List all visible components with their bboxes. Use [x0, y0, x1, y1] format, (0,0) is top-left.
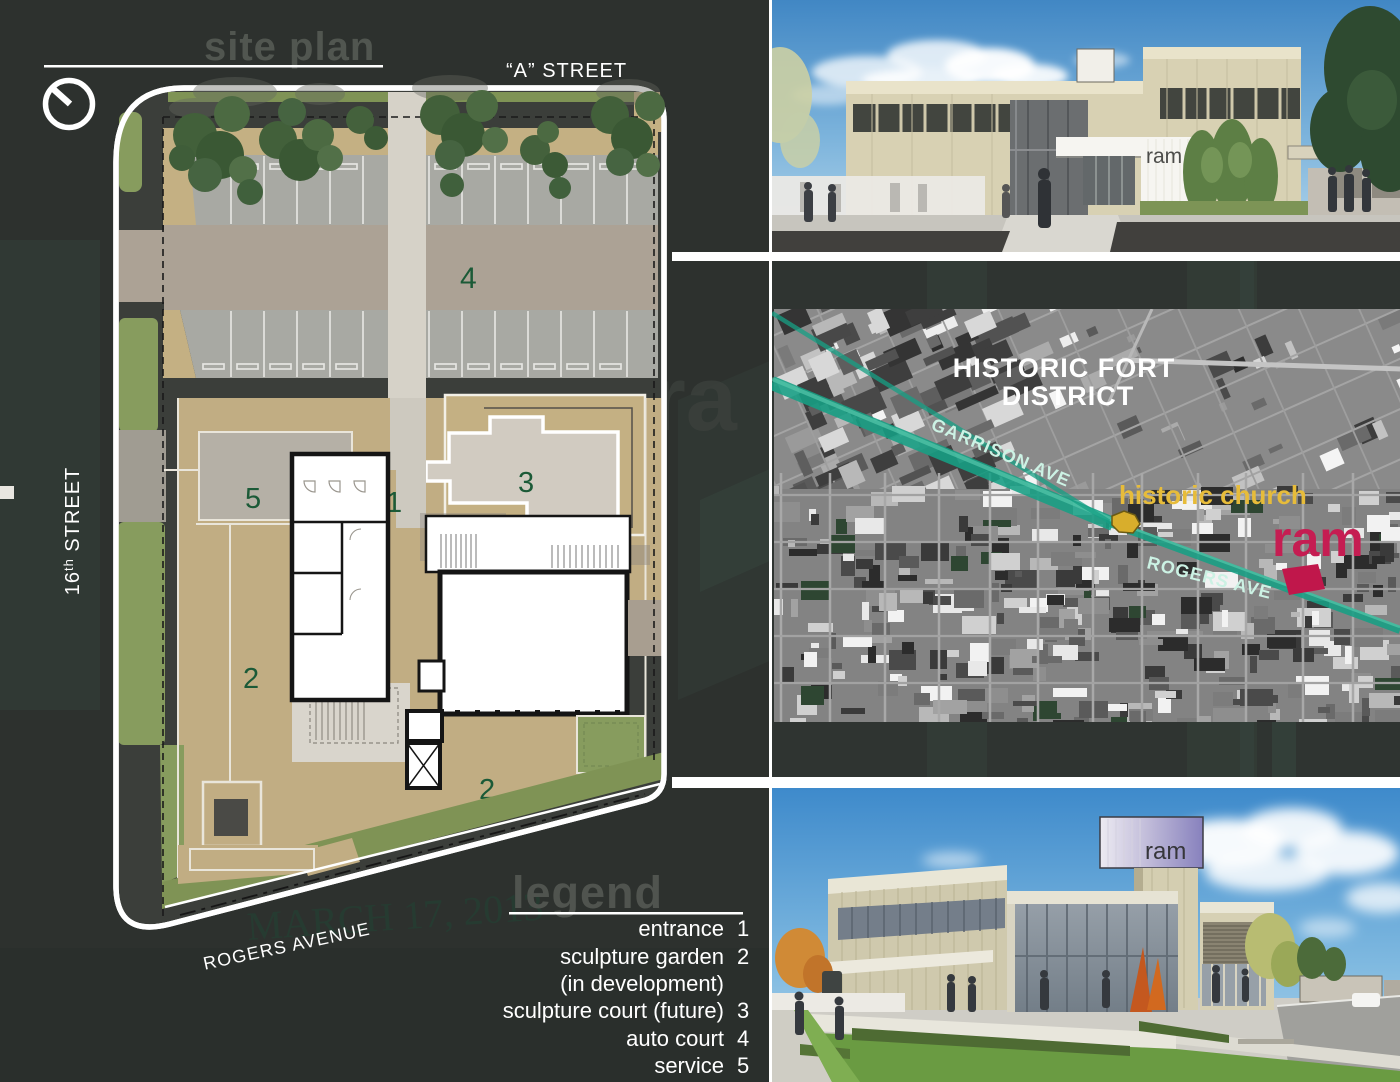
svg-text:16th STREET: 16th STREET: [61, 467, 84, 596]
svg-text:legend: legend: [512, 867, 663, 918]
svg-text:sculpture court (future): sculpture court (future): [503, 998, 724, 1023]
svg-text:3: 3: [737, 998, 749, 1023]
svg-text:HISTORIC FORT: HISTORIC FORT: [953, 353, 1176, 383]
svg-text:4: 4: [737, 1026, 749, 1051]
svg-text:sculpture garden: sculpture garden: [560, 944, 724, 969]
svg-text:site plan: site plan: [204, 25, 375, 69]
svg-text:ram: ram: [1145, 838, 1186, 865]
svg-text:3: 3: [518, 467, 534, 499]
svg-text:historic church: historic church: [1119, 480, 1307, 510]
svg-text:(in development): (in development): [560, 971, 724, 996]
svg-text:DISTRICT: DISTRICT: [1002, 381, 1135, 411]
svg-text:1: 1: [737, 916, 749, 941]
svg-text:5: 5: [245, 483, 261, 515]
svg-text:5: 5: [737, 1053, 749, 1078]
svg-text:entrance: entrance: [638, 916, 724, 941]
svg-text:ram: ram: [1272, 511, 1364, 567]
svg-text:“A” STREET: “A” STREET: [506, 60, 627, 82]
svg-text:2: 2: [243, 663, 259, 695]
svg-text:service: service: [654, 1053, 724, 1078]
svg-text:2: 2: [737, 944, 749, 969]
svg-text:auto court: auto court: [626, 1026, 724, 1051]
svg-text:ram: ram: [1146, 145, 1182, 168]
svg-text:4: 4: [460, 262, 477, 295]
